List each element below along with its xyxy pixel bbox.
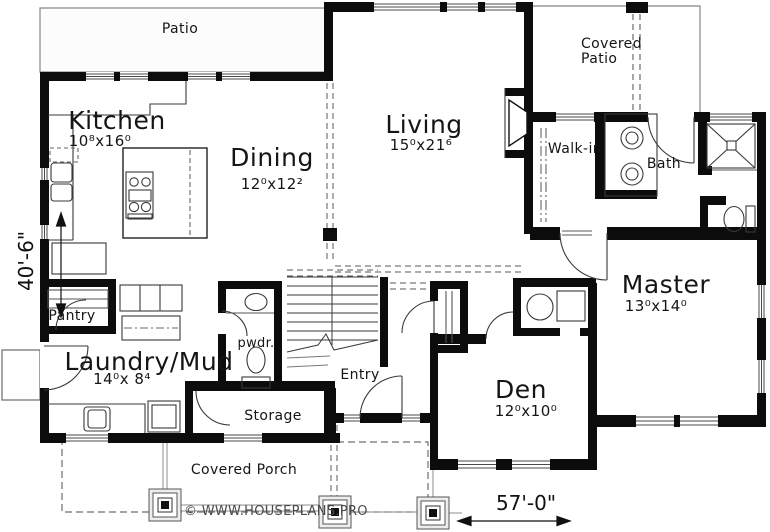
column [149, 489, 181, 521]
room-dims-dining: 12⁰x12² [212, 177, 332, 193]
dishwasher [50, 148, 78, 162]
side-stoop [2, 350, 40, 400]
mud-lockers [120, 285, 182, 340]
room-label-entry: Entry [329, 368, 391, 383]
room-dims-kitchen: 10⁸x16⁰ [50, 134, 150, 150]
patio-outline [40, 8, 332, 72]
room-label-master: Master [606, 272, 726, 298]
washer [148, 401, 180, 432]
kitchen-sink [51, 163, 72, 182]
utility-closet-fixtures [527, 291, 585, 321]
dimension-width-label: 57'-0" [466, 491, 586, 515]
room-dims-master: 13⁰x14⁰ [596, 299, 716, 315]
column [417, 497, 449, 529]
copyright-watermark: © WWW.HOUSEPLANS.PRO [184, 504, 368, 519]
dimension-height-label: 40'-6" [14, 211, 36, 311]
room-dims-den: 12⁰x10⁰ [466, 404, 586, 420]
room-label-patio: Patio [140, 22, 220, 37]
floor-plan-drawing [0, 0, 770, 532]
room-label-den: Den [461, 377, 581, 403]
room-label-covered-patio-1: Covered [581, 37, 661, 52]
room-label-bath: Bath [634, 157, 694, 172]
room-label-walk-in: Walk-in [535, 142, 615, 157]
room-dims-laundry: 14⁰x 8⁴ [62, 372, 182, 388]
room-dims-living: 15⁰x21⁶ [361, 138, 481, 154]
room-label-storage: Storage [237, 409, 309, 424]
shower [707, 124, 757, 170]
room-label-covered-porch: Covered Porch [174, 463, 314, 478]
floor-plan: Patio Covered Patio Kitchen 10⁸x16⁰ Dini… [0, 0, 770, 532]
room-label-covered-patio-2: Patio [581, 52, 661, 67]
room-label-kitchen: Kitchen [57, 108, 177, 134]
kitchen-island [123, 148, 207, 238]
room-label-pantry: Pantry [41, 309, 103, 324]
room-label-living: Living [364, 112, 484, 138]
dining-column [323, 228, 337, 241]
water-heater [527, 294, 553, 320]
furnace [557, 291, 585, 321]
room-label-powder: pwdr. [226, 337, 286, 351]
stairs [287, 277, 378, 367]
refrigerator [52, 243, 106, 274]
room-label-dining: Dining [212, 145, 332, 171]
